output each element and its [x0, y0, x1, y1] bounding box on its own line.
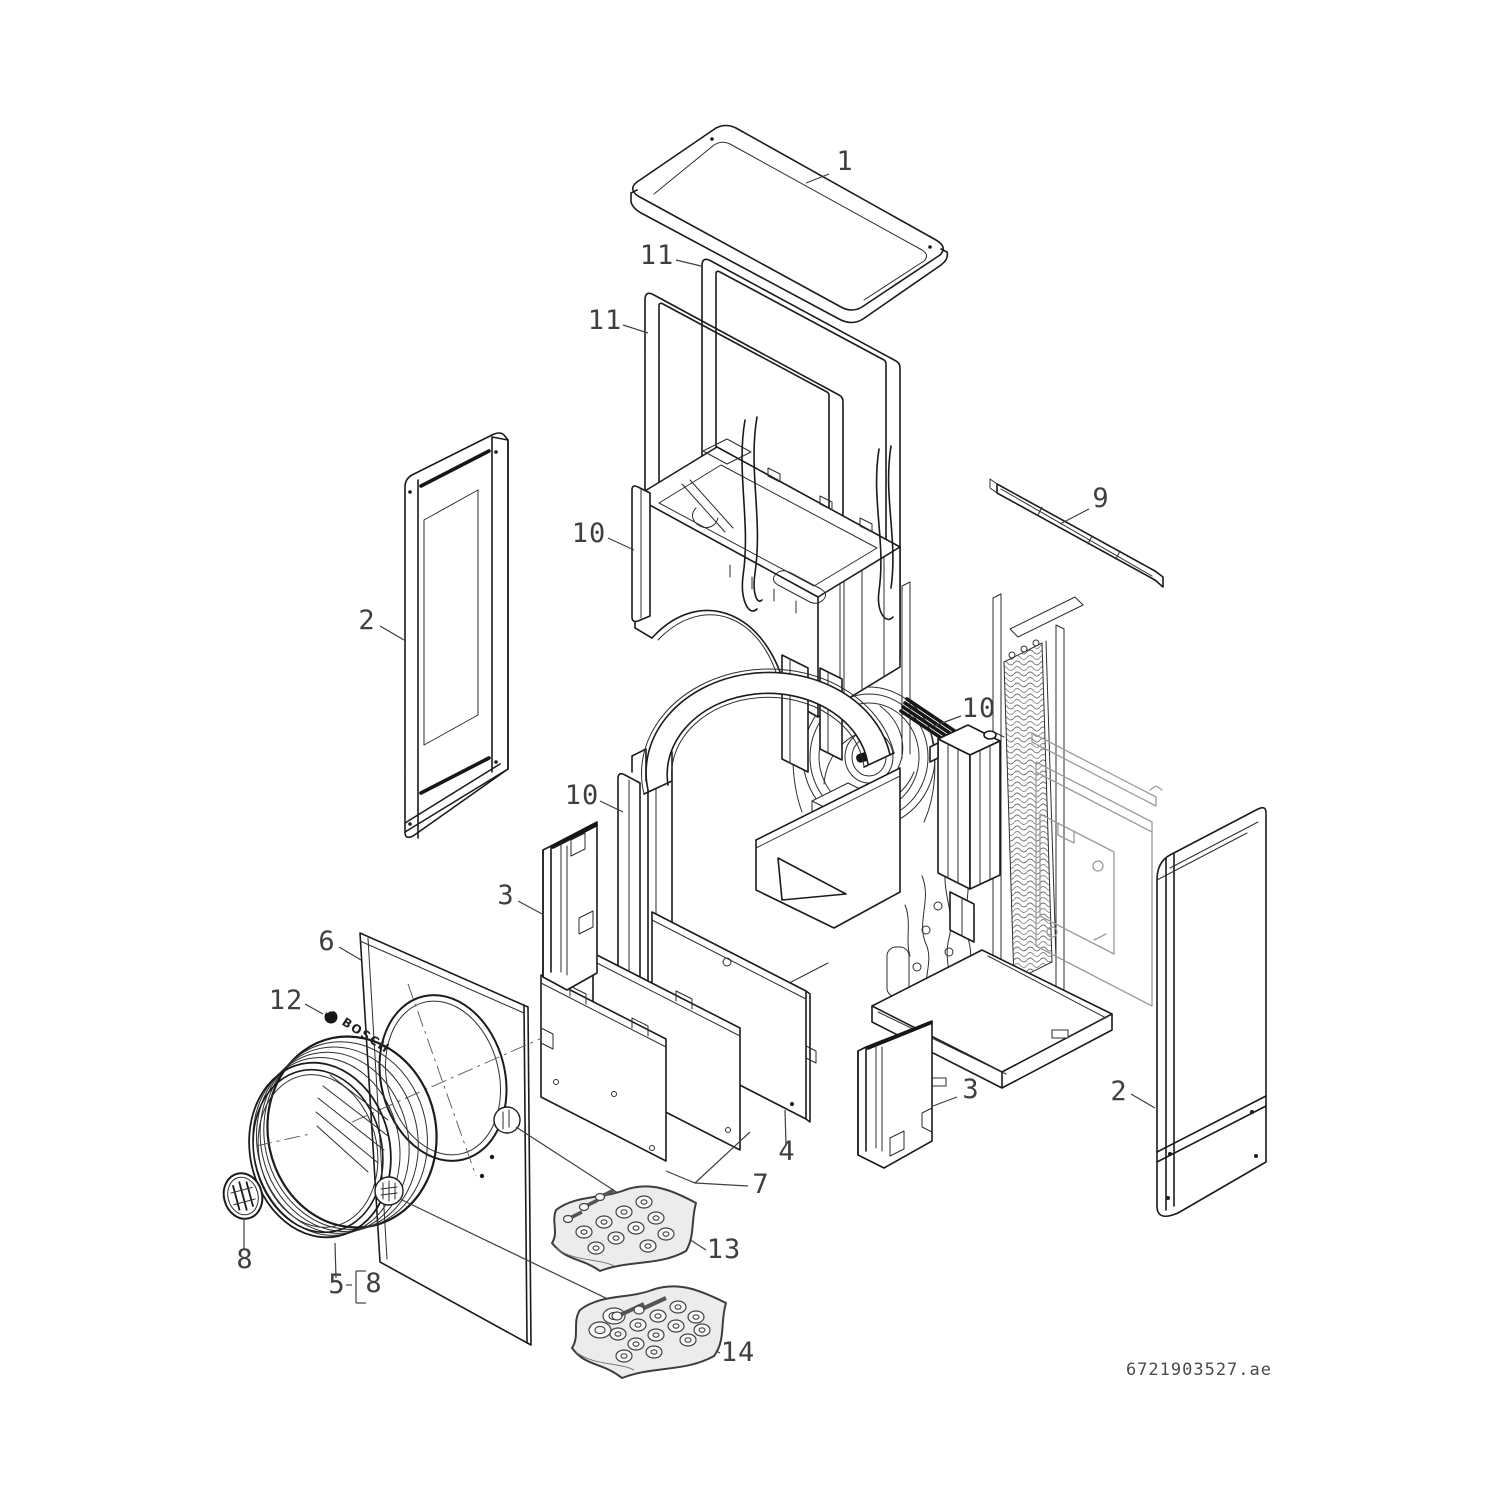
callout-leader-9	[1060, 509, 1089, 524]
callout-leader-3	[933, 1097, 957, 1106]
callout-leader-2	[380, 626, 404, 640]
side-panel-right	[1157, 808, 1266, 1217]
bosch-logo-dot	[325, 1011, 338, 1024]
callout-label-1: 1	[836, 146, 853, 177]
detail-circle-panel	[494, 1107, 520, 1133]
callout-label-6: 6	[318, 926, 335, 957]
exploded-parts-diagram-page: BOSCH	[0, 0, 1500, 1500]
epp-column-right	[901, 699, 1004, 942]
callout-label-8: 8	[365, 1268, 382, 1299]
callout-label-2: 2	[1110, 1076, 1127, 1107]
callout-label-2: 2	[358, 605, 375, 636]
callout-label-4: 4	[778, 1136, 795, 1167]
callout-label-10: 10	[962, 693, 997, 724]
side-panel-left	[405, 433, 508, 838]
callout-label-11: 11	[588, 305, 623, 336]
callout-leader-12	[305, 1004, 323, 1014]
callout-label-3: 3	[962, 1074, 979, 1105]
fastener-kit-13	[552, 1186, 696, 1271]
callout-label-8: 8	[236, 1244, 253, 1275]
callout-leader-11	[676, 260, 701, 266]
corner-trim-right	[858, 1021, 932, 1168]
top-cover	[631, 126, 947, 323]
callout-label-9: 9	[1092, 483, 1109, 514]
callout-label-5: 5	[328, 1269, 345, 1300]
callout-leader-7	[666, 1171, 748, 1186]
callout-leader-2	[1131, 1094, 1155, 1108]
callout-label-10: 10	[565, 780, 600, 811]
callout-label-11: 11	[640, 240, 675, 271]
callout-leader-3	[518, 901, 544, 915]
callout-label-10: 10	[572, 518, 607, 549]
corner-trim-left	[543, 822, 597, 990]
callout-leader-6	[339, 947, 361, 960]
callout-label-12: 12	[269, 985, 304, 1016]
exploded-diagram: BOSCH	[0, 0, 1500, 1500]
fastener-kit-14	[572, 1286, 726, 1378]
rear-panels-gray	[1032, 733, 1162, 1006]
document-code: 6721903527.ae	[1126, 1360, 1272, 1380]
mounting-rail	[990, 479, 1163, 587]
callout-label-7: 7	[752, 1169, 769, 1200]
callout-label-13: 13	[707, 1234, 742, 1265]
callout-label-3: 3	[497, 880, 514, 911]
callout-leader-10	[608, 538, 634, 550]
callout-label-14: 14	[721, 1337, 756, 1368]
